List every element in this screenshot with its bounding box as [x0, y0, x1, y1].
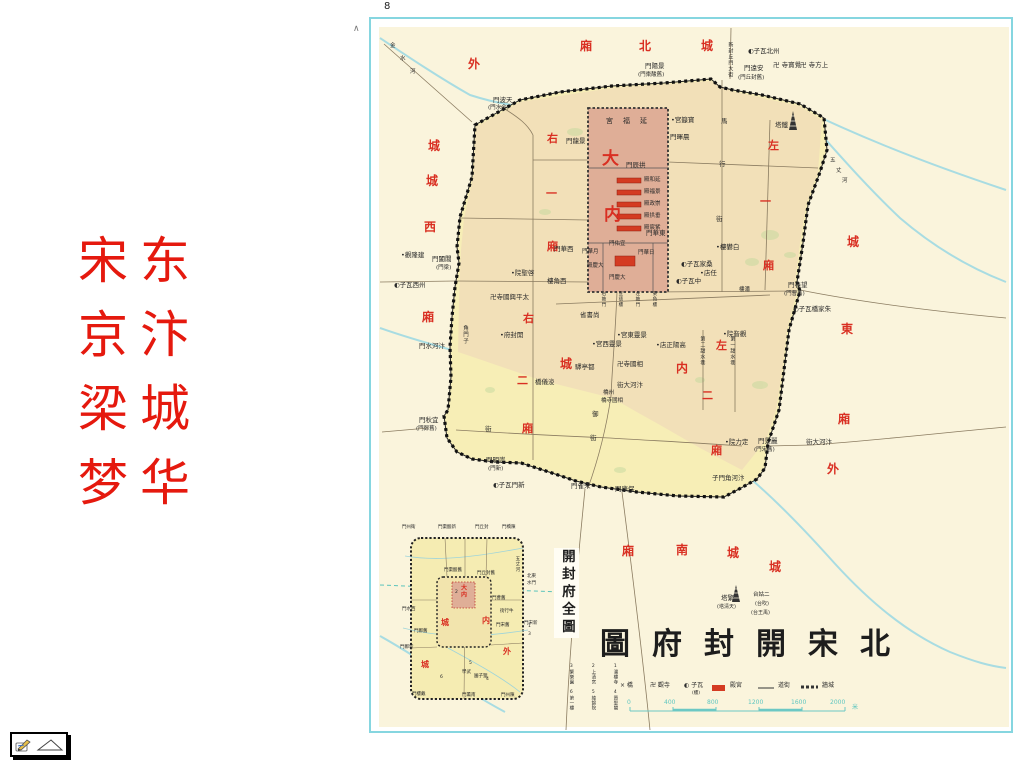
pen-icon[interactable] — [14, 737, 32, 753]
slideshow-canvas: 宋东京汴梁城梦华 8 ∧ — [0, 0, 1024, 768]
map-graphic — [0, 0, 1024, 768]
imperial-palace — [588, 108, 668, 292]
annotation-toolbar[interactable] — [10, 732, 68, 757]
inset-map — [403, 538, 528, 699]
advance-triangle-icon[interactable] — [36, 737, 64, 752]
